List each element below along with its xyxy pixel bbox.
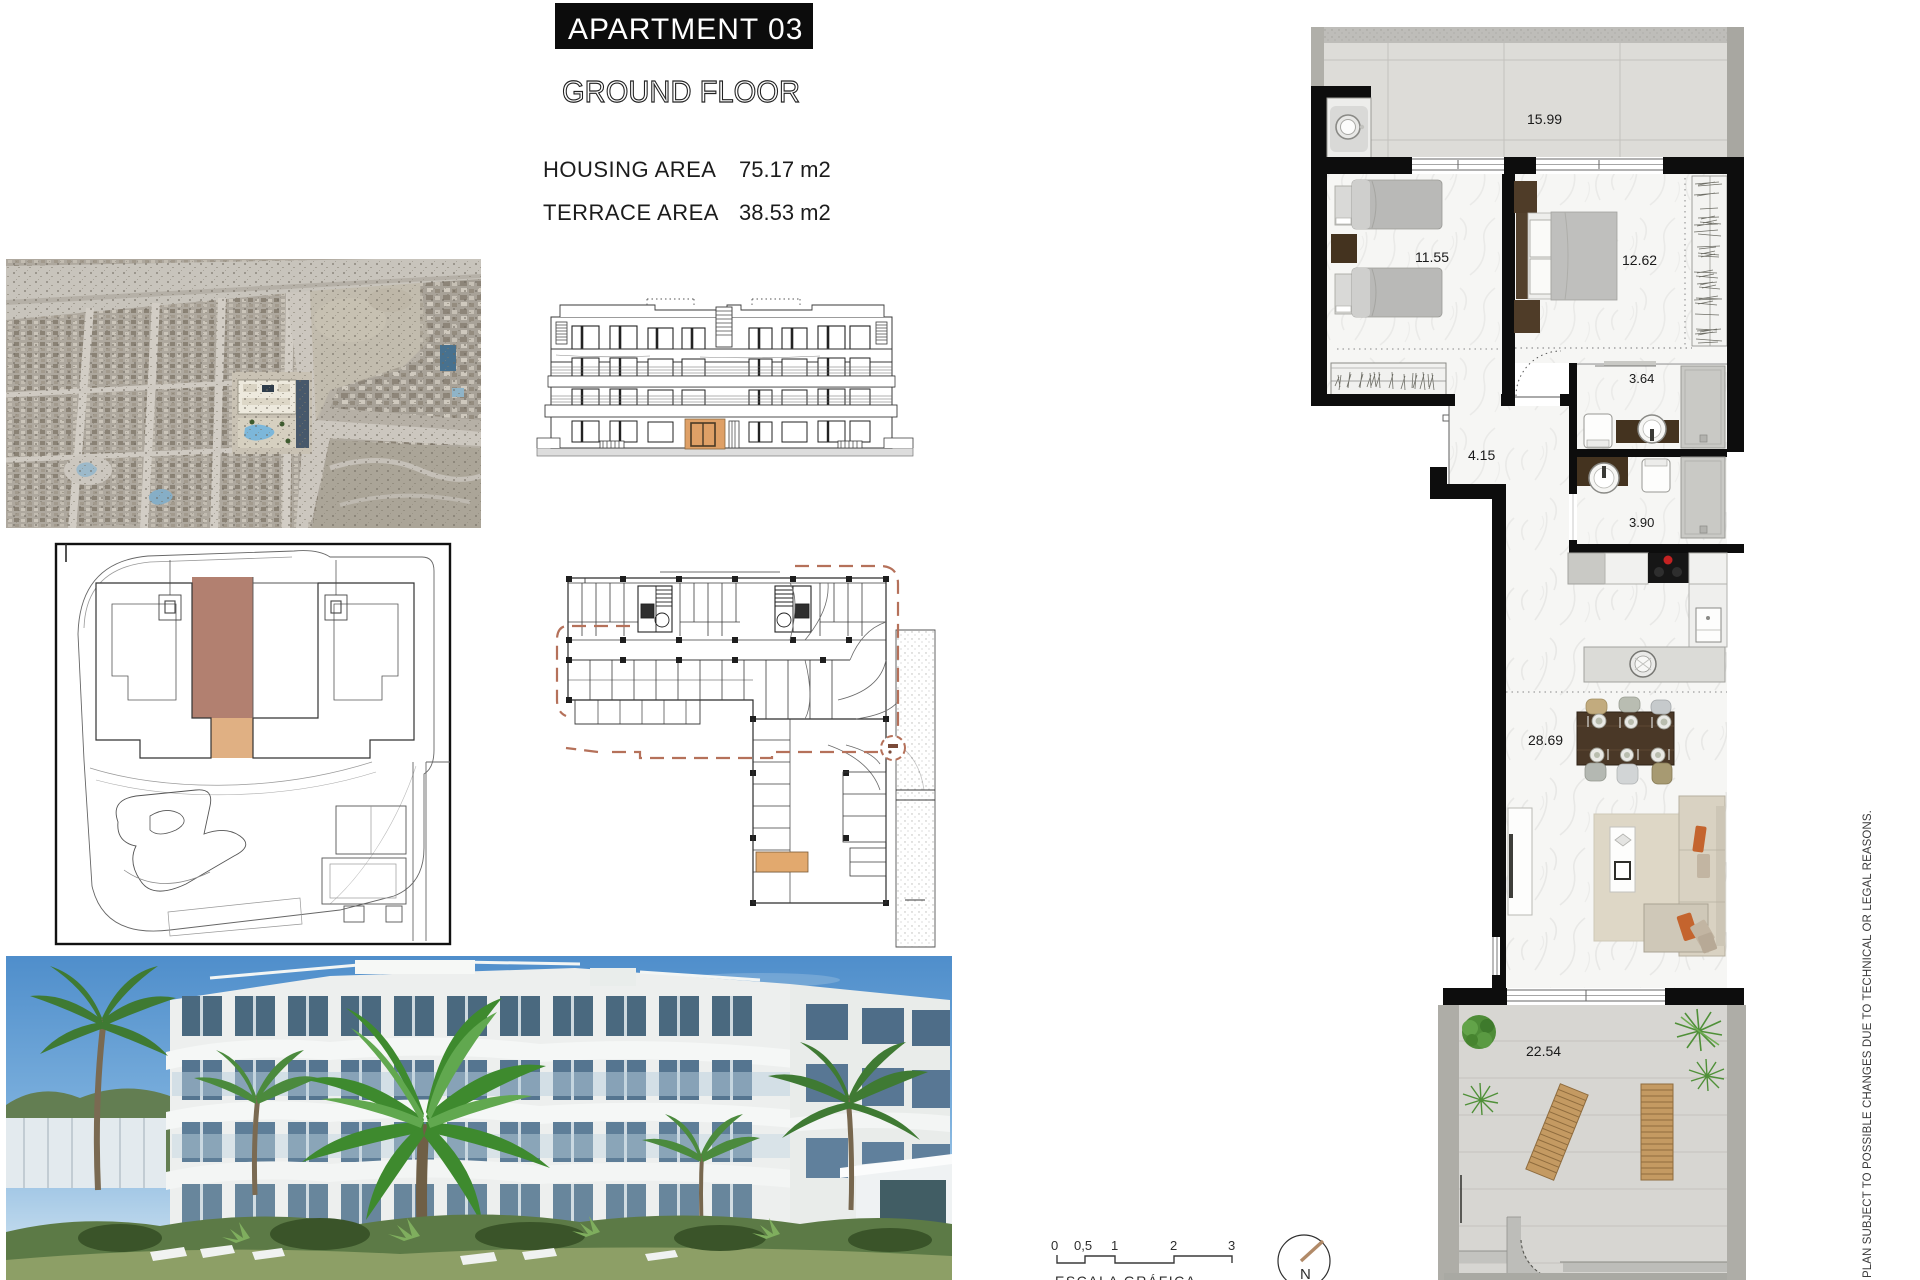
svg-text:2: 2 xyxy=(1170,1238,1177,1253)
svg-text:GROUND FLOOR: GROUND FLOOR xyxy=(562,74,800,109)
svg-text:28.69: 28.69 xyxy=(1528,732,1563,748)
svg-text:38.53 m2: 38.53 m2 xyxy=(739,200,831,225)
svg-text:ESCALA GRÁFICA: ESCALA GRÁFICA xyxy=(1055,1273,1197,1280)
svg-text:75.17 m2: 75.17 m2 xyxy=(739,157,831,182)
svg-text:0,5: 0,5 xyxy=(1074,1238,1092,1253)
svg-text:HOUSING AREA: HOUSING AREA xyxy=(543,157,716,182)
svg-text:3.64: 3.64 xyxy=(1629,371,1654,386)
svg-text:3: 3 xyxy=(1228,1238,1235,1253)
svg-text:12.62: 12.62 xyxy=(1622,252,1657,268)
svg-text:22.54: 22.54 xyxy=(1526,1043,1561,1059)
svg-text:PLAN SUBJECT TO POSSIBLE CHANG: PLAN SUBJECT TO POSSIBLE CHANGES DUE TO … xyxy=(1862,810,1874,1278)
svg-text:TERRACE AREA: TERRACE AREA xyxy=(543,200,719,225)
svg-text:0: 0 xyxy=(1051,1238,1058,1253)
svg-text:11.55: 11.55 xyxy=(1415,249,1449,265)
svg-text:N: N xyxy=(1300,1266,1311,1280)
svg-text:1: 1 xyxy=(1111,1238,1118,1253)
svg-text:APARTMENT 03: APARTMENT 03 xyxy=(568,13,803,46)
svg-text:4.15: 4.15 xyxy=(1468,447,1495,463)
svg-text:3.90: 3.90 xyxy=(1629,515,1654,530)
svg-text:15.99: 15.99 xyxy=(1527,111,1562,127)
